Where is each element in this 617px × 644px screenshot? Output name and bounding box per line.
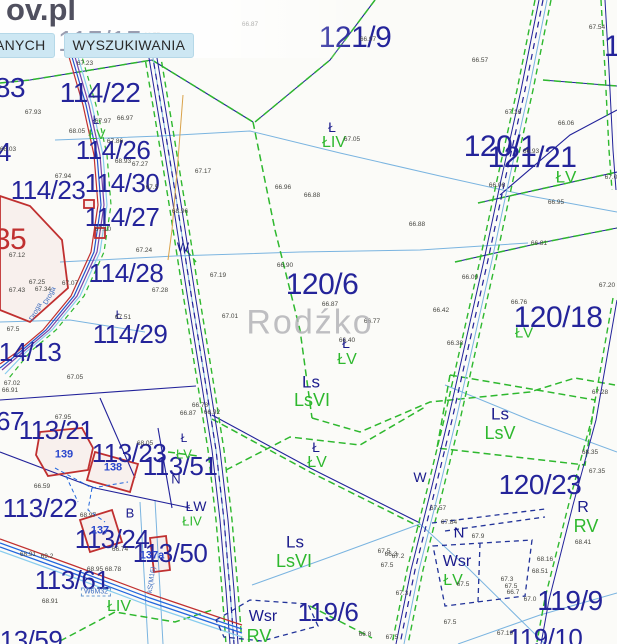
logo-fragment: ov.pl — [6, 0, 76, 28]
wsr-outlines — [216, 509, 545, 641]
tab-danych[interactable]: ANYCH — [0, 33, 55, 58]
utility-box-label: W6M32 — [81, 588, 111, 597]
road-c — [537, 0, 617, 644]
map-watermark: Rodźko — [246, 304, 373, 343]
tab-wyszukiwania[interactable]: WYSZUKIWANIA — [64, 33, 195, 58]
road-b — [392, 0, 551, 644]
map-canvas[interactable]: 121/9114/2283114/264121/21120/1114/23114… — [0, 0, 617, 644]
road-bottom-left — [0, 539, 242, 637]
buildings — [0, 196, 170, 572]
tab-bar: ANYCH WYSZUKIWANIA — [0, 33, 194, 58]
